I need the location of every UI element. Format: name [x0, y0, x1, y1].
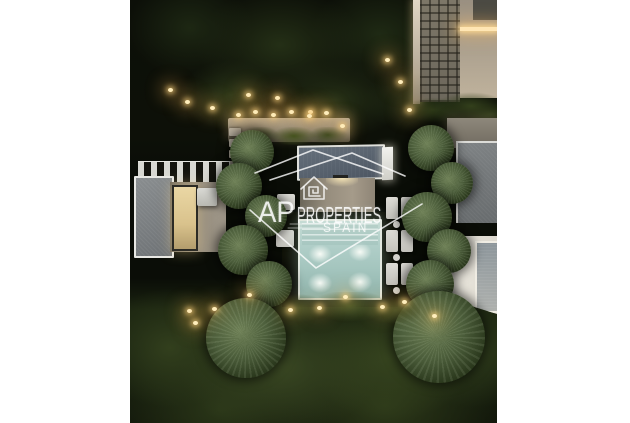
- screenshot: AP PROPERTIES SPAIN: [0, 0, 630, 423]
- garden-light: [271, 113, 276, 117]
- garden-light: [317, 306, 322, 310]
- garden-light: [168, 88, 173, 92]
- wall-unit: [197, 188, 217, 206]
- lit-window: [172, 185, 198, 251]
- side-table: [393, 221, 400, 228]
- garden-light: [275, 96, 280, 100]
- garden-light: [407, 108, 412, 112]
- left-building-roof: [134, 176, 174, 258]
- garden-light: [185, 100, 190, 104]
- swimming-pool: [298, 219, 382, 300]
- garden-light: [432, 314, 437, 318]
- garden-light: [236, 113, 241, 117]
- garden-light: [246, 93, 251, 97]
- lit-wall-strip: [413, 0, 420, 104]
- garden-light: [343, 295, 348, 299]
- garden-light: [398, 80, 403, 84]
- left-building: [134, 174, 226, 256]
- garden-light: [187, 309, 192, 313]
- under-roof-light: [326, 178, 358, 187]
- garden-light: [340, 124, 345, 128]
- garden-light: [288, 308, 293, 312]
- garden-light: [247, 293, 252, 297]
- roof-panel: [473, 0, 497, 20]
- pool-steps: [302, 223, 378, 245]
- garden-light: [193, 321, 198, 325]
- garden-light: [385, 58, 390, 62]
- garden-light: [210, 106, 215, 110]
- garden-light: [402, 300, 407, 304]
- property-photo: AP PROPERTIES SPAIN: [130, 0, 497, 423]
- sun-lounger: [386, 263, 398, 285]
- sun-lounger: [386, 197, 398, 219]
- garden-light: [307, 114, 312, 118]
- led-strip-light: [460, 27, 497, 31]
- building-panel: [475, 241, 497, 313]
- garden-light: [253, 110, 258, 114]
- garden-light: [212, 307, 217, 311]
- villa-roof-group: [295, 143, 397, 183]
- villa-roof-fascia: [382, 147, 393, 180]
- garden-light: [380, 305, 385, 309]
- tiled-roof: [420, 0, 460, 102]
- sun-lounger: [386, 230, 398, 252]
- garden-light: [324, 111, 329, 115]
- side-table: [393, 254, 400, 261]
- garden-light: [289, 110, 294, 114]
